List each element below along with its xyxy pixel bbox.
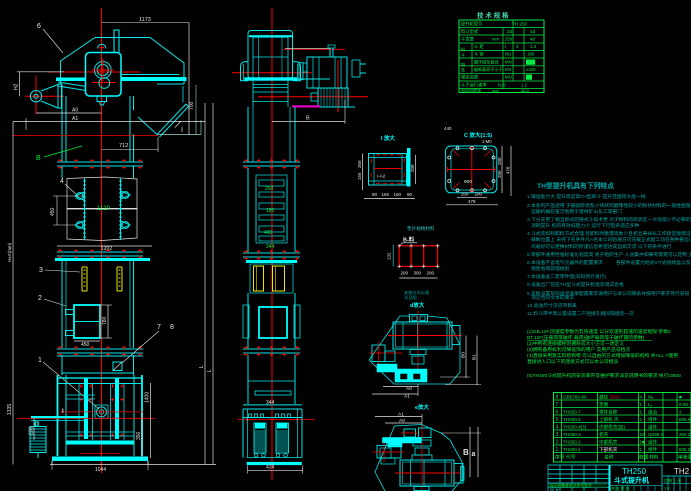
svg-text:350: 350 xyxy=(136,431,142,440)
svg-text:250: 250 xyxy=(265,186,274,192)
svg-text:712: 712 xyxy=(119,143,128,149)
svg-text:190: 190 xyxy=(527,52,535,57)
svg-text:2.本系列产品适用 于输退碎状及小块状的磨琢性较小的粉状材料: 2.本系列产品适用 于输退碎状及小块状的磨琢性较小的粉状材料的一般性壁版压 xyxy=(527,202,691,209)
svg-text:KN: KN xyxy=(505,67,511,72)
svg-text:斗 容: 斗 容 xyxy=(474,51,484,58)
svg-text:比例 ∑ 张: 比例 ∑ 张 xyxy=(664,477,681,483)
svg-text:圆环链条直径: 圆环链条直径 xyxy=(474,59,499,65)
svg-text:组件: 组件 xyxy=(648,416,658,423)
svg-text:9.08: 9.08 xyxy=(679,402,688,407)
svg-text:H2: H2 xyxy=(14,83,20,90)
svg-text:4: 4 xyxy=(556,425,559,431)
svg-text:螺栓 2015: 螺栓 2015 xyxy=(599,394,620,401)
svg-text:斗宽度: 斗宽度 xyxy=(461,36,475,43)
svg-text:Q235-A: Q235-A xyxy=(648,432,665,437)
svg-text:B: B xyxy=(36,155,41,162)
svg-text:8: 8 xyxy=(170,324,174,331)
svg-text:3.下分支用了相当新式的链式斗技术更 对于物料的碎状区一大地: 3.下分支用了相当新式的链式斗技术更 对于物料的碎状区一大地减少不必要的功率 xyxy=(527,216,691,223)
svg-text:B: B xyxy=(463,448,469,457)
svg-text:B1: B1 xyxy=(472,354,478,360)
svg-text:TH250.4(3): TH250.4(3) xyxy=(563,425,587,430)
svg-text:90: 90 xyxy=(407,192,413,197)
svg-text:司载好可以更换材料的所谨信息希望达成自如交流 以下的条件进行: 司载好可以更换材料的所谨信息希望达成自如交流 以下的条件进行 xyxy=(531,243,672,250)
svg-text:1044: 1044 xyxy=(95,467,106,473)
svg-text:N./5: N./5 xyxy=(498,83,506,88)
svg-text:I 放大: I 放大 xyxy=(381,134,396,142)
svg-text:GB5782-86: GB5782-86 xyxy=(563,395,587,400)
svg-text:3: 3 xyxy=(556,432,559,438)
svg-text:4d: 4d xyxy=(530,37,535,42)
svg-text:424: 424 xyxy=(266,464,275,470)
svg-text:7: 7 xyxy=(556,402,559,408)
svg-text:478: 478 xyxy=(506,166,511,174)
svg-text:组件: 组件 xyxy=(648,439,658,446)
svg-text:A0: A0 xyxy=(406,386,412,392)
svg-text:1: 1 xyxy=(38,357,42,364)
svg-text:斗: 斗 xyxy=(461,53,465,58)
svg-text:1: 1 xyxy=(640,417,643,422)
svg-text:200: 200 xyxy=(410,164,415,172)
svg-text:TH250.1: TH250.1 xyxy=(563,447,581,452)
svg-text:TH250.3: TH250.3 xyxy=(563,432,581,437)
svg-text:4.斗式装料和卸料方式合理 装卸料时散落现象少且机壮寿命长工: 4.斗式装料和卸料方式合理 装卸料时散落现象少且机壮寿命长工作稳定能保证 xyxy=(527,230,691,237)
svg-text:7: 7 xyxy=(157,324,161,331)
svg-text:200: 200 xyxy=(475,192,483,197)
svg-text:200: 200 xyxy=(497,170,502,178)
svg-text:B-料: B-料 xyxy=(403,236,415,244)
svg-text:销售地域管理规划: 销售地域管理规划 xyxy=(531,265,570,272)
svg-text:8.设备出厂前在TH型斗式提升机组装调试合格: 8.设备出厂前在TH型斗式提升机组装调试合格 xyxy=(527,281,624,288)
svg-text:200: 200 xyxy=(427,271,435,276)
svg-text:3: 3 xyxy=(39,267,43,274)
svg-text:700: 700 xyxy=(189,101,195,110)
svg-text:料斗型式: 料斗型式 xyxy=(461,28,479,35)
svg-text:MN: MN xyxy=(505,60,512,65)
svg-text:d放大: d放大 xyxy=(410,301,425,309)
svg-text:900: 900 xyxy=(464,179,472,185)
svg-text:400: 400 xyxy=(264,230,273,236)
svg-text:H±X(mm): H±X(mm) xyxy=(7,242,12,262)
svg-text:中部机壳: 中部机壳 xyxy=(599,439,618,446)
svg-text:5: 5 xyxy=(556,417,559,423)
svg-text:详见图: 详见图 xyxy=(404,294,417,301)
svg-text:1173: 1173 xyxy=(139,17,151,23)
svg-text:200: 200 xyxy=(497,157,502,165)
svg-text:TH2: TH2 xyxy=(674,467,690,476)
svg-text:详见合同文本的要求: 详见合同文本的要求 xyxy=(531,294,574,301)
svg-text:各部件设置为地式V/T式接线盒以及: 各部件设置为地式V/T式接线盒以及 xyxy=(616,259,691,266)
svg-text:斗 距: 斗 距 xyxy=(474,44,484,49)
svg-text:e放大: e放大 xyxy=(415,403,430,411)
svg-text:B: B xyxy=(306,116,310,122)
svg-text:Lₒ: Lₒ xyxy=(648,402,653,407)
svg-text:A0: A0 xyxy=(399,418,405,424)
svg-text:TH型提升机具有下列特点: TH型提升机具有下列特点 xyxy=(537,181,614,190)
svg-text:1: 1 xyxy=(640,402,643,407)
svg-text:数量: 数量 xyxy=(639,454,649,461)
svg-text:90: 90 xyxy=(372,192,378,197)
svg-text:48.3: 48.3 xyxy=(521,88,530,93)
svg-text:A1: A1 xyxy=(404,394,410,400)
svg-text:斗式提升机: 斗式提升机 xyxy=(614,476,649,485)
svg-text:1.输送能力大 提升高度高TH型单斗 提升范围较大能一栈: 1.输送能力大 提升高度高TH型单斗 提升范围较大能一栈 xyxy=(527,193,646,200)
svg-text:提升机型号: 提升机型号 xyxy=(461,21,482,28)
svg-text:L: L xyxy=(207,369,213,372)
svg-text:Sd: Sd xyxy=(530,29,536,34)
svg-text:8: 8 xyxy=(556,395,559,401)
svg-text:破断载荷不小于: 破断载荷不小于 xyxy=(474,66,503,72)
svg-text:TH250.6: TH250.6 xyxy=(563,417,581,422)
svg-text:10.验收尺寸见贷项目表: 10.验收尺寸见贷项目表 xyxy=(527,302,577,309)
svg-text:204 2: 204 2 xyxy=(679,432,691,437)
svg-text:TH250.7: TH250.7 xyxy=(563,410,581,415)
svg-text:1: 1 xyxy=(640,410,643,415)
svg-text:(2)中所有连接螺栓的拥秋成大小方可一述定义: (2)中所有连接螺栓的拥秋成大小方可一述定义 xyxy=(527,340,624,347)
svg-text:TH250: TH250 xyxy=(622,467,647,476)
svg-text:200: 200 xyxy=(401,271,409,276)
svg-text:B0: B0 xyxy=(461,352,467,358)
svg-text:1: 1 xyxy=(640,447,643,452)
svg-text:450: 450 xyxy=(50,207,56,216)
svg-text:10: 10 xyxy=(640,432,646,437)
svg-text:450: 450 xyxy=(81,342,90,348)
svg-text:消耗提升 机的有效低阻力小 运行下行阻多适应多种: 消耗提升 机的有效低阻力小 运行下行阻多适应多种 xyxy=(531,222,639,229)
svg-text:输送高度: 输送高度 xyxy=(461,74,479,81)
svg-text:电动机转速: 电动机转速 xyxy=(461,87,481,93)
svg-text:A1: A1 xyxy=(398,412,404,418)
svg-text:11.料斗带半周公差设置二户连接孔相间隔组装一次: 11.料斗带半周公差设置二户连接孔相间隔组装一次 xyxy=(527,310,634,317)
svg-text:Mₒ: Mₒ xyxy=(648,395,654,400)
svg-text:300: 300 xyxy=(414,271,422,276)
svg-text:设 计: 设 计 xyxy=(550,486,559,491)
svg-text:MU: MU xyxy=(505,75,512,80)
svg-text:组件: 组件 xyxy=(648,446,658,453)
svg-text:250: 250 xyxy=(505,37,513,42)
svg-text:1335: 1335 xyxy=(7,404,13,415)
svg-text:7.本设备含二套零件图(号码另行发行): 7.本设备含二套零件图(号码另行发行) xyxy=(527,273,607,280)
svg-text:835 6: 835 6 xyxy=(679,447,691,452)
svg-text:■: ■ xyxy=(679,395,682,400)
svg-text:A0: A0 xyxy=(72,108,78,114)
svg-text:2: 2 xyxy=(556,440,559,446)
svg-text:Zd: Zd xyxy=(507,29,513,34)
svg-text:344: 344 xyxy=(266,244,275,250)
svg-text:技 术 规 格: 技 术 规 格 xyxy=(477,11,509,20)
svg-text:6: 6 xyxy=(556,410,559,416)
svg-text:NU: NU xyxy=(505,52,511,57)
svg-text:835 6: 835 6 xyxy=(679,417,691,422)
svg-text:BT,12F(压载荷等破坏,载荷(破坏载荷等于破坏期的参数): BT,12F(压载荷等破坏,载荷(破坏载荷等于破坏期的参数) xyxy=(527,334,645,341)
svg-text:1400: 1400 xyxy=(145,392,151,403)
svg-text:(5)TH250斗式提升机的安装库存及维护要求详见说明书的要: (5)TH250斗式提升机的安装库存及维护要求详见说明书的要求 执行GB50. xyxy=(527,372,682,379)
svg-text:组合: 组合 xyxy=(648,409,658,416)
svg-text:垫片规格材料: 垫片规格材料 xyxy=(407,225,435,232)
svg-text:下部机壳: 下部机壳 xyxy=(599,446,618,453)
svg-text:4: 4 xyxy=(640,395,643,400)
svg-text:5.零部件通用性强标准化程度高 易于组织生产 人员集中如果有: 5.零部件通用性强标准化程度高 易于组织生产 人员集中如果有需要可以定制 五金 xyxy=(527,251,691,258)
svg-text:(4)直接采用敦实的结构物 可以自由的方式增加降低的机构 并: (4)直接采用敦实的结构物 可以自由的方式增加降低的机构 并ALL.Y使用 xyxy=(527,352,678,359)
svg-text:1120: 1120 xyxy=(97,206,111,212)
svg-text:1202: 1202 xyxy=(101,246,112,252)
svg-text:1.2: 1.2 xyxy=(521,83,528,88)
svg-text:TH 250: TH 250 xyxy=(512,22,528,27)
svg-text:机壳: 机壳 xyxy=(599,431,609,438)
svg-text:6: 6 xyxy=(37,23,41,30)
svg-text:1:4: 1:4 xyxy=(664,486,670,491)
svg-text:I: I xyxy=(505,44,506,49)
svg-text:1.3: 1.3 xyxy=(530,44,537,49)
svg-text:350: 350 xyxy=(357,160,362,168)
svg-text:2: 2 xyxy=(38,295,42,302)
svg-text:L: L xyxy=(199,365,205,368)
svg-text:A1: A1 xyxy=(72,116,78,122)
svg-text:200: 200 xyxy=(29,426,35,435)
svg-text:I-A2: I-A2 xyxy=(377,174,386,179)
svg-text:零件名称: 零件名称 xyxy=(599,409,618,416)
svg-text:150: 150 xyxy=(394,192,402,197)
svg-text:(1)GB,12F,的速度参数为乳快速度 以分欢速别超速的速: (1)GB,12F,的速度参数为乳快速度 以分欢速别超速的速度极限 参数2 xyxy=(527,328,671,335)
svg-text:名称: 名称 xyxy=(604,454,614,461)
svg-text:200: 200 xyxy=(461,192,469,197)
svg-text:组件: 组件 xyxy=(648,424,658,431)
svg-text:载断位置上 未经下名条件凡A名本公司始通方可充载正式能工功在: 载断位置上 未经下名条件凡A名本公司始通方可充载正式能工功在各种部位以本公 xyxy=(531,236,691,243)
svg-text:a: a xyxy=(472,451,476,458)
svg-text:4: 4 xyxy=(60,178,64,185)
svg-text:共 张 第 张: 共 张 第 张 xyxy=(611,486,630,491)
svg-text:440: 440 xyxy=(444,126,452,131)
svg-text:(3)拥有备用权利可降低饰的用户 及用产品号档次: (3)拥有备用权利可降低饰的用户 及用产品号档次 xyxy=(527,346,630,353)
svg-text:垫圈: 垫圈 xyxy=(599,401,609,408)
svg-text:TH250.2: TH250.2 xyxy=(563,440,581,445)
svg-text:2: 2 xyxy=(679,410,682,415)
svg-text:m/s: m/s xyxy=(492,88,498,93)
svg-text:≥320: ≥320 xyxy=(526,67,536,72)
svg-text:材料: 材料 xyxy=(649,454,659,461)
svg-text:6.本设备不含电气元器件的配置要求: 6.本设备不含电气元器件的配置要求 xyxy=(527,259,603,266)
svg-text:780: 780 xyxy=(102,316,108,325)
svg-text:上部机 壳: 上部机 壳 xyxy=(599,416,619,423)
svg-text:132: 132 xyxy=(387,252,392,260)
svg-text:1-M0: 1-M0 xyxy=(482,139,492,144)
svg-text:180: 180 xyxy=(266,208,275,214)
svg-text:mm: mm xyxy=(492,37,499,42)
svg-text:序号 代号: 序号 代号 xyxy=(555,454,576,461)
svg-text:运输机械较宽泛地用于建材矿山化工等部门: 运输机械较宽泛地用于建材矿山化工等部门 xyxy=(531,208,622,215)
svg-text:单重量: 单重量 xyxy=(678,454,691,461)
svg-text:478: 478 xyxy=(468,199,476,204)
svg-text:C 放大(1:5): C 放大(1:5) xyxy=(464,131,492,139)
svg-text:中部机壳(加): 中部机壳(加) xyxy=(599,424,625,431)
svg-text:直接进入口以下的连接方式可以本公司相谈: 直接进入口以下的连接方式可以本公司相谈 xyxy=(527,358,618,365)
svg-text:1: 1 xyxy=(556,447,559,453)
svg-text:1■: 1■ xyxy=(640,440,646,445)
svg-text:155: 155 xyxy=(357,172,362,180)
svg-text:150: 150 xyxy=(382,192,390,197)
